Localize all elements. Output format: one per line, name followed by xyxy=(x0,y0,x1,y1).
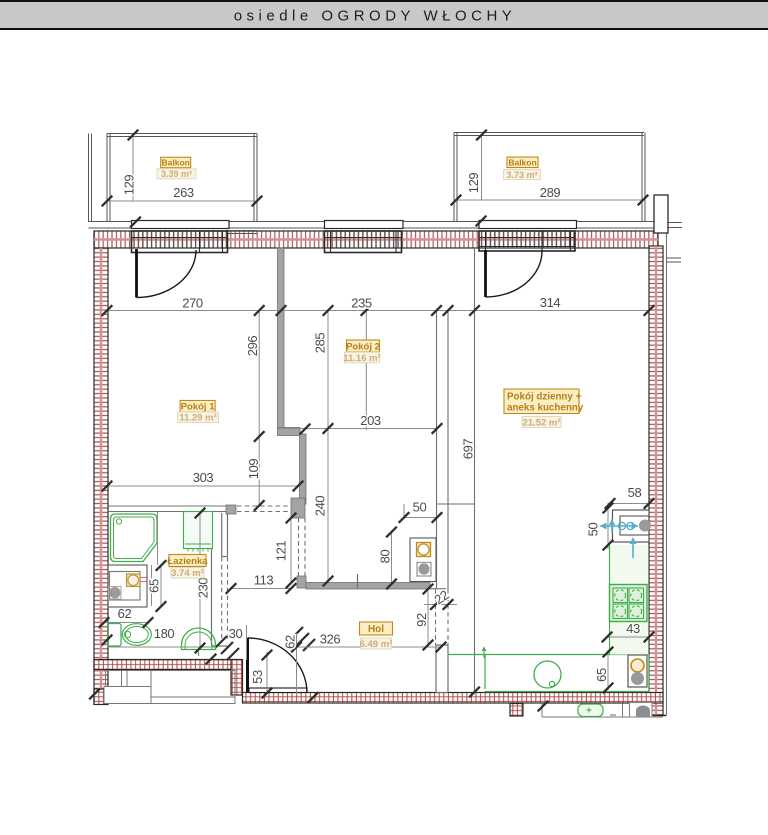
svg-text:Balkon: Balkon xyxy=(162,158,190,168)
svg-text:92: 92 xyxy=(414,613,429,627)
svg-text:303: 303 xyxy=(193,470,214,485)
svg-text:326: 326 xyxy=(320,632,341,647)
svg-text:230: 230 xyxy=(196,578,211,599)
svg-text:80: 80 xyxy=(378,550,393,564)
svg-text:263: 263 xyxy=(173,185,194,200)
svg-text:121: 121 xyxy=(274,541,289,562)
svg-text:697: 697 xyxy=(461,439,476,460)
svg-text:240: 240 xyxy=(313,496,328,517)
svg-text:314: 314 xyxy=(540,295,561,310)
svg-text:21.52 m²: 21.52 m² xyxy=(522,417,560,428)
svg-text:3.39 m²: 3.39 m² xyxy=(161,169,192,179)
svg-text:109: 109 xyxy=(246,459,261,480)
svg-text:58: 58 xyxy=(628,485,642,500)
svg-text:296: 296 xyxy=(245,336,260,357)
svg-text:203: 203 xyxy=(360,413,381,428)
svg-text:65: 65 xyxy=(594,668,609,682)
svg-text:62: 62 xyxy=(283,635,298,649)
svg-text:43: 43 xyxy=(626,621,640,636)
svg-text:11.16 m²: 11.16 m² xyxy=(343,353,381,364)
svg-text:129: 129 xyxy=(466,173,481,194)
svg-text:6.49 m²: 6.49 m² xyxy=(360,639,393,650)
svg-text:270: 270 xyxy=(182,296,203,311)
svg-text:Pokój 1: Pokój 1 xyxy=(181,402,216,413)
svg-text:3.74 m²: 3.74 m² xyxy=(171,568,204,579)
svg-text:65: 65 xyxy=(147,579,162,593)
svg-text:Łazienka: Łazienka xyxy=(167,556,208,567)
svg-text:289: 289 xyxy=(540,185,561,200)
svg-text:Balkon: Balkon xyxy=(508,157,536,167)
svg-text:53: 53 xyxy=(250,670,265,684)
svg-text:Hol: Hol xyxy=(368,624,384,635)
svg-text:11.29 m²: 11.29 m² xyxy=(179,413,217,424)
svg-text:50: 50 xyxy=(586,523,601,537)
svg-text:285: 285 xyxy=(313,333,328,354)
svg-text:Pokój dzienny +: Pokój dzienny + xyxy=(507,392,582,403)
svg-text:129: 129 xyxy=(122,175,137,196)
svg-text:180: 180 xyxy=(154,626,175,641)
svg-text:Pokój 2: Pokój 2 xyxy=(346,341,380,352)
svg-text:62: 62 xyxy=(118,606,132,621)
svg-text:3.73 m²: 3.73 m² xyxy=(506,170,537,180)
svg-text:aneks kuchenny: aneks kuchenny xyxy=(507,403,584,414)
svg-text:113: 113 xyxy=(254,573,274,588)
svg-text:30: 30 xyxy=(229,626,243,641)
svg-text:osiedle OGRODY WŁOCHY: osiedle OGRODY WŁOCHY xyxy=(234,8,517,25)
svg-text:50: 50 xyxy=(413,500,427,515)
svg-text:235: 235 xyxy=(351,296,372,311)
